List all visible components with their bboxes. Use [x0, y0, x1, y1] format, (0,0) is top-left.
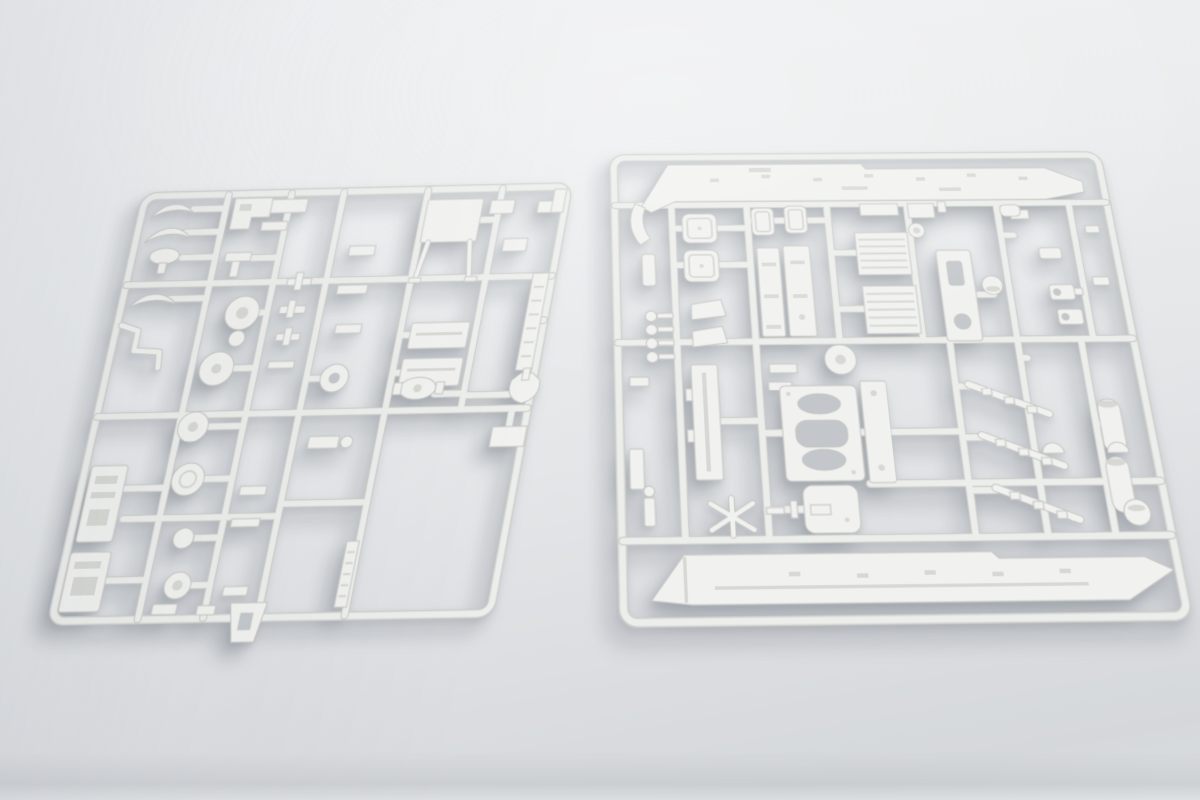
right-parts-sprue — [610, 152, 1193, 627]
photo-stage — [0, 0, 1200, 800]
